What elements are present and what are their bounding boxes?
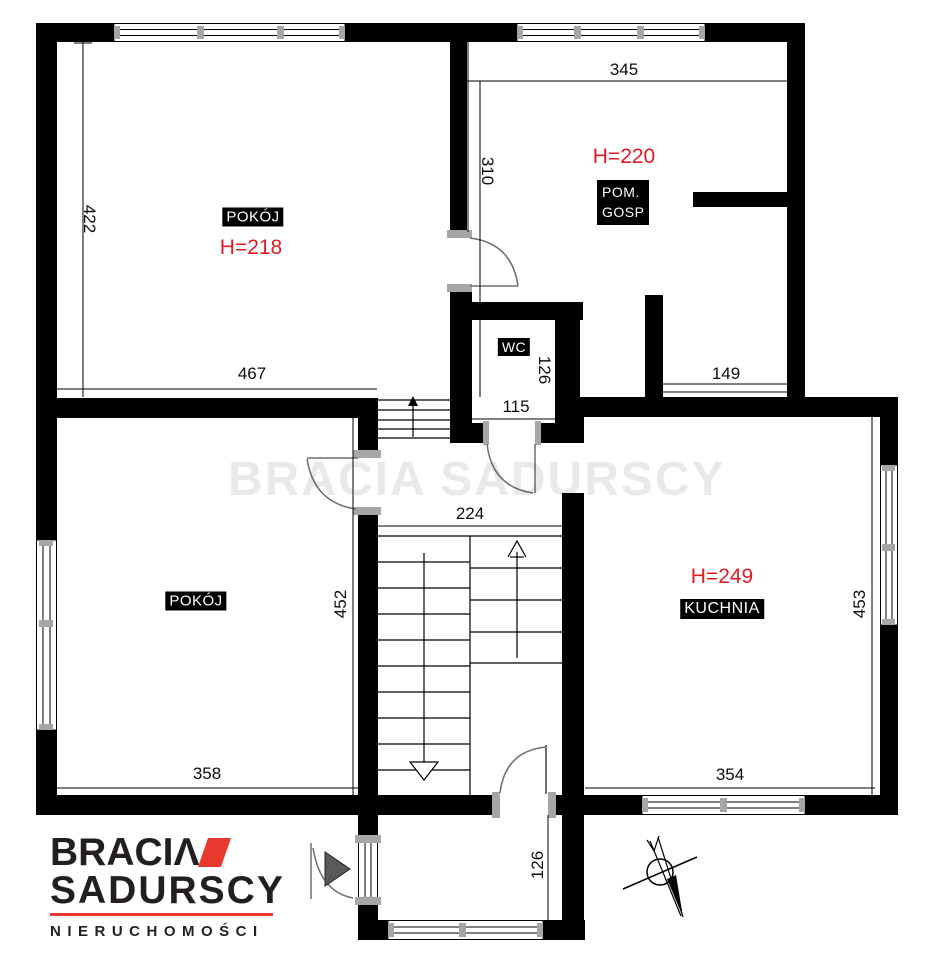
utility-label-line2: GOSP bbox=[602, 204, 644, 220]
window-left bbox=[37, 540, 57, 730]
dimension-126-wc: 126 bbox=[534, 356, 554, 384]
room-label-wc: WC bbox=[498, 338, 530, 356]
logo-word1: BRACI bbox=[50, 831, 174, 874]
north-arrow-icon bbox=[623, 836, 697, 917]
dimension-149: 149 bbox=[712, 364, 740, 384]
utility-label-line1: POM. bbox=[602, 184, 640, 200]
height-label-kitchen: H=249 bbox=[691, 565, 753, 589]
room-label-utility: POM.GOSP bbox=[597, 180, 649, 225]
window-top-right bbox=[517, 24, 705, 42]
dimension-453: 453 bbox=[850, 590, 870, 618]
window-vestibule-bottom bbox=[388, 921, 543, 940]
dimension-345: 345 bbox=[610, 60, 638, 80]
dimension-422: 422 bbox=[79, 205, 99, 233]
logo-red-mark-icon bbox=[198, 838, 231, 867]
dimension-115: 115 bbox=[502, 397, 529, 417]
dimension-224: 224 bbox=[456, 504, 484, 524]
window-kitchen-right bbox=[881, 465, 898, 625]
stairs-up-arrow-icon bbox=[408, 396, 418, 406]
agency-logo: BRACIΛ SADURSCY NIERUCHOMOŚCI bbox=[50, 834, 290, 940]
dimension-452: 452 bbox=[331, 590, 351, 618]
logo-word1-mark: Λ bbox=[174, 831, 200, 874]
floor-plan: BRACIA SADURSCY bbox=[0, 0, 933, 960]
entrance-arrow-icon bbox=[325, 852, 350, 886]
room-label-top-left: POKÓJ bbox=[222, 208, 283, 227]
agency-watermark: BRACIA SADURSCY bbox=[228, 452, 726, 507]
dimension-310: 310 bbox=[477, 157, 497, 185]
door-exterior bbox=[311, 835, 381, 905]
logo-word-bracia: BRACIΛ bbox=[50, 833, 200, 872]
room-label-kitchen: KUCHNIA bbox=[680, 599, 764, 619]
height-label-utility: H=220 bbox=[593, 145, 655, 169]
door-entrance-hall bbox=[492, 745, 556, 818]
stairs-right-flight bbox=[470, 541, 563, 663]
door-utility bbox=[447, 230, 518, 292]
stairs-upper-flight bbox=[378, 396, 450, 438]
dimension-126-vestibule: 126 bbox=[528, 851, 548, 879]
room-label-bottom-left: POKÓJ bbox=[165, 592, 226, 611]
dimension-354: 354 bbox=[716, 765, 744, 785]
stairs-left-flight bbox=[378, 553, 470, 780]
stairs-down-arrow-icon bbox=[410, 762, 438, 780]
logo-tagline: NIERUCHOMOŚCI bbox=[50, 923, 290, 940]
window-kitchen-bottom bbox=[642, 796, 805, 815]
window-top-left bbox=[114, 24, 345, 42]
logo-underline bbox=[50, 913, 273, 916]
dimension-467: 467 bbox=[238, 364, 266, 384]
height-label-top-left: H=218 bbox=[220, 236, 282, 260]
logo-word-sadurscy: SADURSCY bbox=[50, 871, 285, 910]
dimension-358: 358 bbox=[193, 764, 221, 784]
